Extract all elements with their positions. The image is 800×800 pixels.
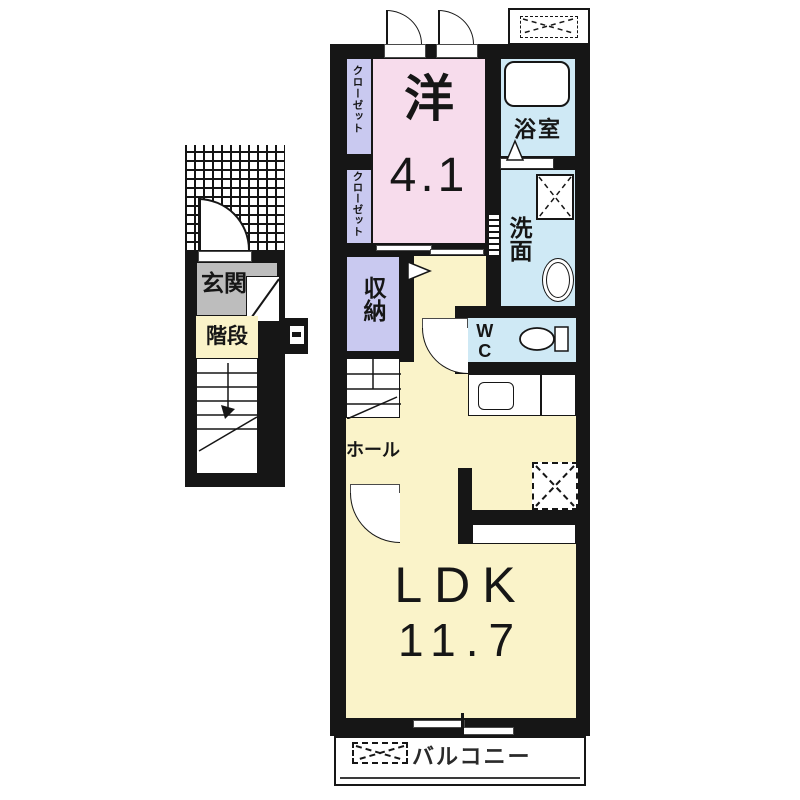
top-door-leaf-2 — [436, 44, 478, 58]
balcony-window-panel-2 — [461, 727, 514, 735]
wall-western-right — [486, 58, 500, 306]
wc-label: WC — [474, 321, 494, 361]
washbasin-icon — [542, 258, 574, 302]
fridge-space-icon — [532, 462, 578, 510]
meter-box-dash — [292, 332, 301, 337]
western-room-size: 4.1 — [372, 152, 486, 200]
washroom-label: 洗面 — [507, 216, 530, 262]
entrance-door-leaf — [198, 251, 252, 262]
storage-label: 収納 — [361, 276, 384, 322]
balcony-label: バルコニー — [412, 746, 532, 768]
wall-closet-gap — [346, 154, 372, 170]
bathtub-icon — [504, 61, 570, 107]
balcony-equipment-icon — [352, 742, 408, 764]
stairs-label: 階段 — [196, 326, 258, 347]
kitchen-counter-divider — [540, 374, 542, 416]
washer-pan-icon — [536, 174, 574, 220]
unit-wall-left — [330, 44, 346, 736]
bath-label: 浴室 — [500, 119, 576, 141]
annex-wall-bottom — [185, 474, 285, 487]
kitchen-bar-counter — [472, 524, 576, 544]
wall-wc-top — [455, 306, 576, 318]
kitchen-sink-icon — [478, 382, 514, 410]
balcony-inner-line — [340, 777, 580, 779]
top-door-leaf-1 — [384, 44, 426, 58]
water-heater-icon — [520, 16, 578, 38]
entrance-label: 玄関 — [201, 272, 247, 295]
annex-stairs — [196, 358, 258, 474]
ldk-size: 11.7 — [346, 617, 576, 663]
storage-folding-door-icon — [406, 258, 434, 284]
wall-kitchen-stub — [458, 468, 472, 544]
closet-1-label: クローゼット — [352, 65, 363, 134]
western-room-name: 洋 — [372, 74, 486, 124]
closet-2-label: クローゼット — [352, 171, 363, 237]
wall-wc-bottom — [455, 362, 576, 374]
top-door-swing-icon-1 — [386, 10, 422, 44]
top-door-swing-icon-2 — [438, 10, 474, 44]
wall-kitchen-lower — [472, 510, 576, 524]
hall-label: ホール — [344, 441, 402, 459]
stairs-arrow-head — [221, 405, 235, 419]
western-sliding-door-panel-1 — [376, 245, 432, 251]
sliding-partition-icon — [488, 212, 500, 256]
toilet-icon — [512, 322, 572, 358]
balcony-window-panel-1 — [413, 720, 465, 728]
annex-wall-right-lower — [258, 322, 285, 487]
main-stairs — [346, 358, 400, 418]
annex-wall-left — [185, 250, 196, 487]
unit-wall-right — [576, 44, 590, 736]
ldk-name: LDK — [346, 560, 576, 610]
floor-plan: 玄関 階段 — [0, 0, 800, 800]
western-sliding-door-panel-2 — [430, 249, 484, 255]
